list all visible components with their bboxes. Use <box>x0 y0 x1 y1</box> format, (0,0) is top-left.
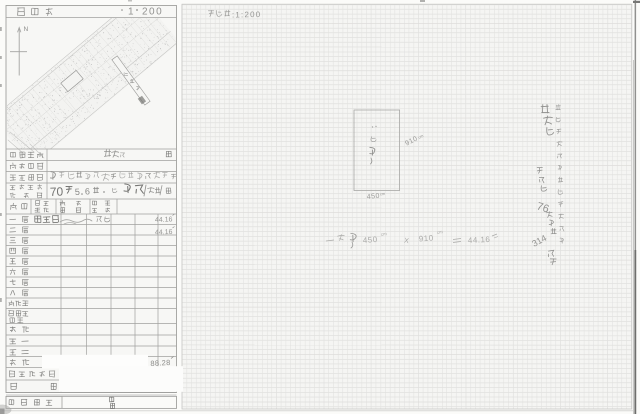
svg-text:910: 910 <box>418 233 433 243</box>
svg-text:cm: cm <box>380 231 387 237</box>
svg-text:70: 70 <box>50 185 64 199</box>
svg-text:cm: cm <box>436 229 443 235</box>
svg-text:200: 200 <box>142 7 163 18</box>
svg-text:44.16: 44.16 <box>468 235 491 245</box>
svg-text::1:200: :1:200 <box>232 10 262 20</box>
svg-text:5: 5 <box>75 187 81 197</box>
svg-text:N: N <box>24 26 29 33</box>
svg-text:6: 6 <box>85 186 90 196</box>
svg-text:450: 450 <box>363 235 378 245</box>
svg-text:1: 1 <box>128 7 134 18</box>
svg-text:44.16: 44.16 <box>155 229 173 237</box>
svg-text:44.16: 44.16 <box>155 216 173 224</box>
svg-text:450: 450 <box>366 193 380 201</box>
